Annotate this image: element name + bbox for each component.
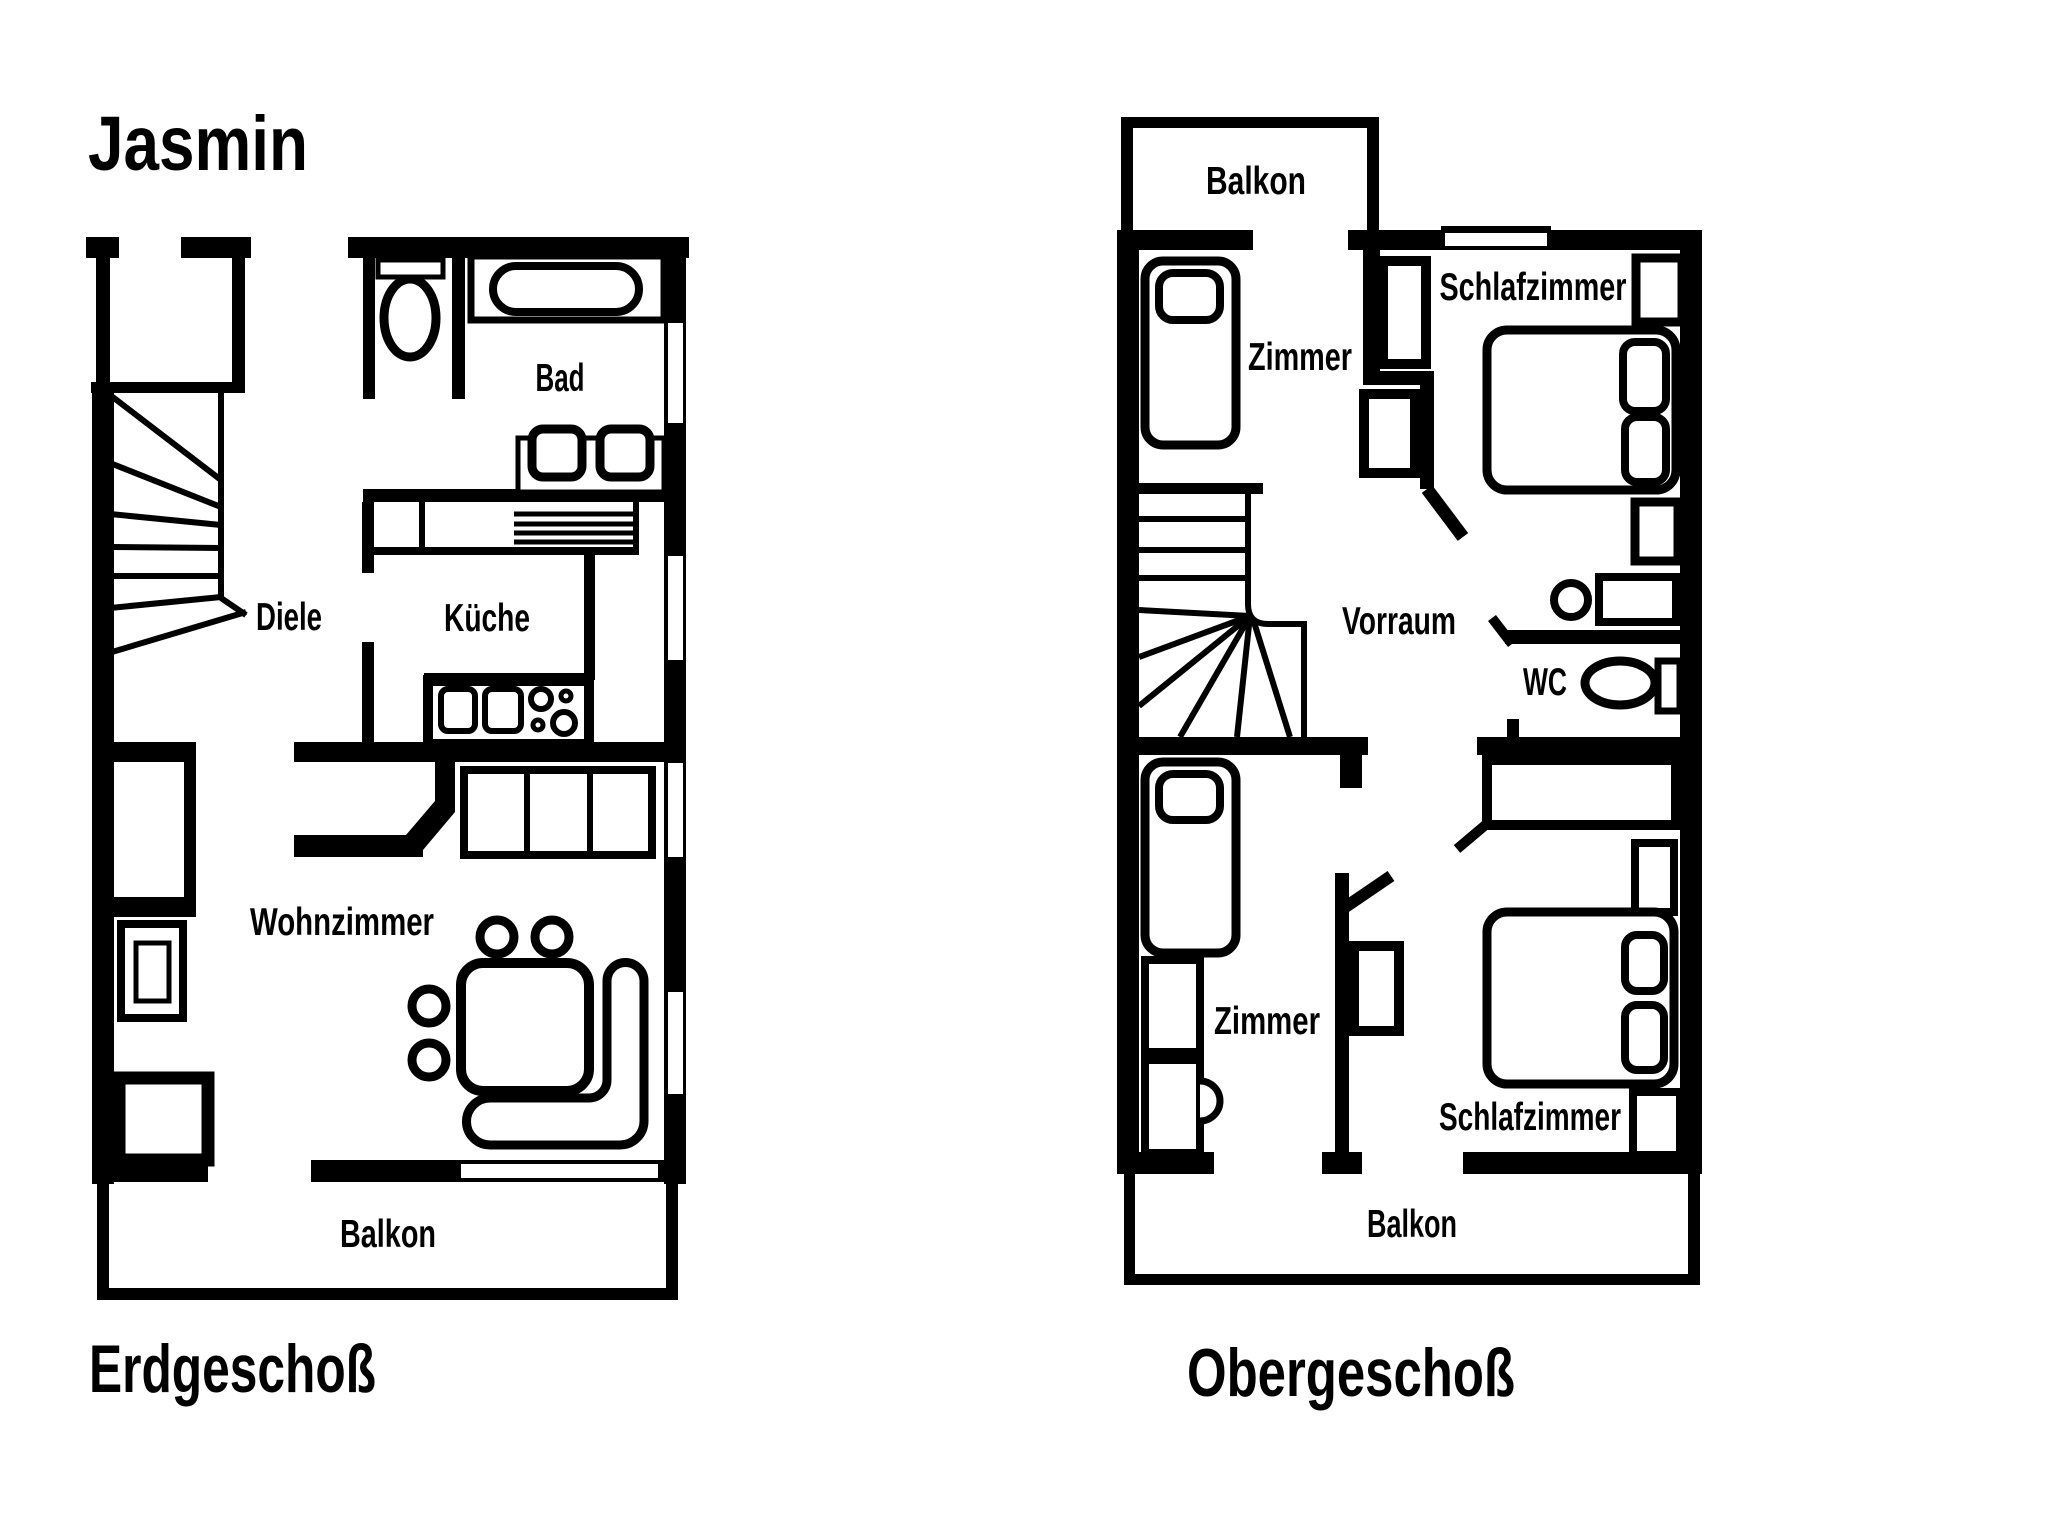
svg-text:Schlafzimmer: Schlafzimmer: [1440, 266, 1627, 309]
svg-text:Jasmin: Jasmin: [88, 101, 308, 187]
svg-text:Diele: Diele: [256, 596, 322, 639]
svg-text:Balkon: Balkon: [1367, 1203, 1457, 1246]
svg-text:Schlafzimmer: Schlafzimmer: [1439, 1096, 1621, 1139]
svg-text:Bad: Bad: [536, 357, 585, 400]
svg-text:Obergeschoß: Obergeschoß: [1187, 1335, 1515, 1411]
svg-text:Zimmer: Zimmer: [1214, 1000, 1320, 1043]
svg-text:Erdgeschoß: Erdgeschoß: [89, 1331, 376, 1407]
svg-text:WC: WC: [1523, 661, 1567, 704]
svg-text:Zimmer: Zimmer: [1248, 336, 1352, 379]
svg-text:Balkon: Balkon: [340, 1213, 436, 1256]
svg-text:Küche: Küche: [444, 597, 530, 640]
svg-text:Wohnzimmer: Wohnzimmer: [250, 901, 434, 944]
svg-text:Balkon: Balkon: [1206, 160, 1306, 203]
svg-text:Vorraum: Vorraum: [1342, 600, 1456, 643]
